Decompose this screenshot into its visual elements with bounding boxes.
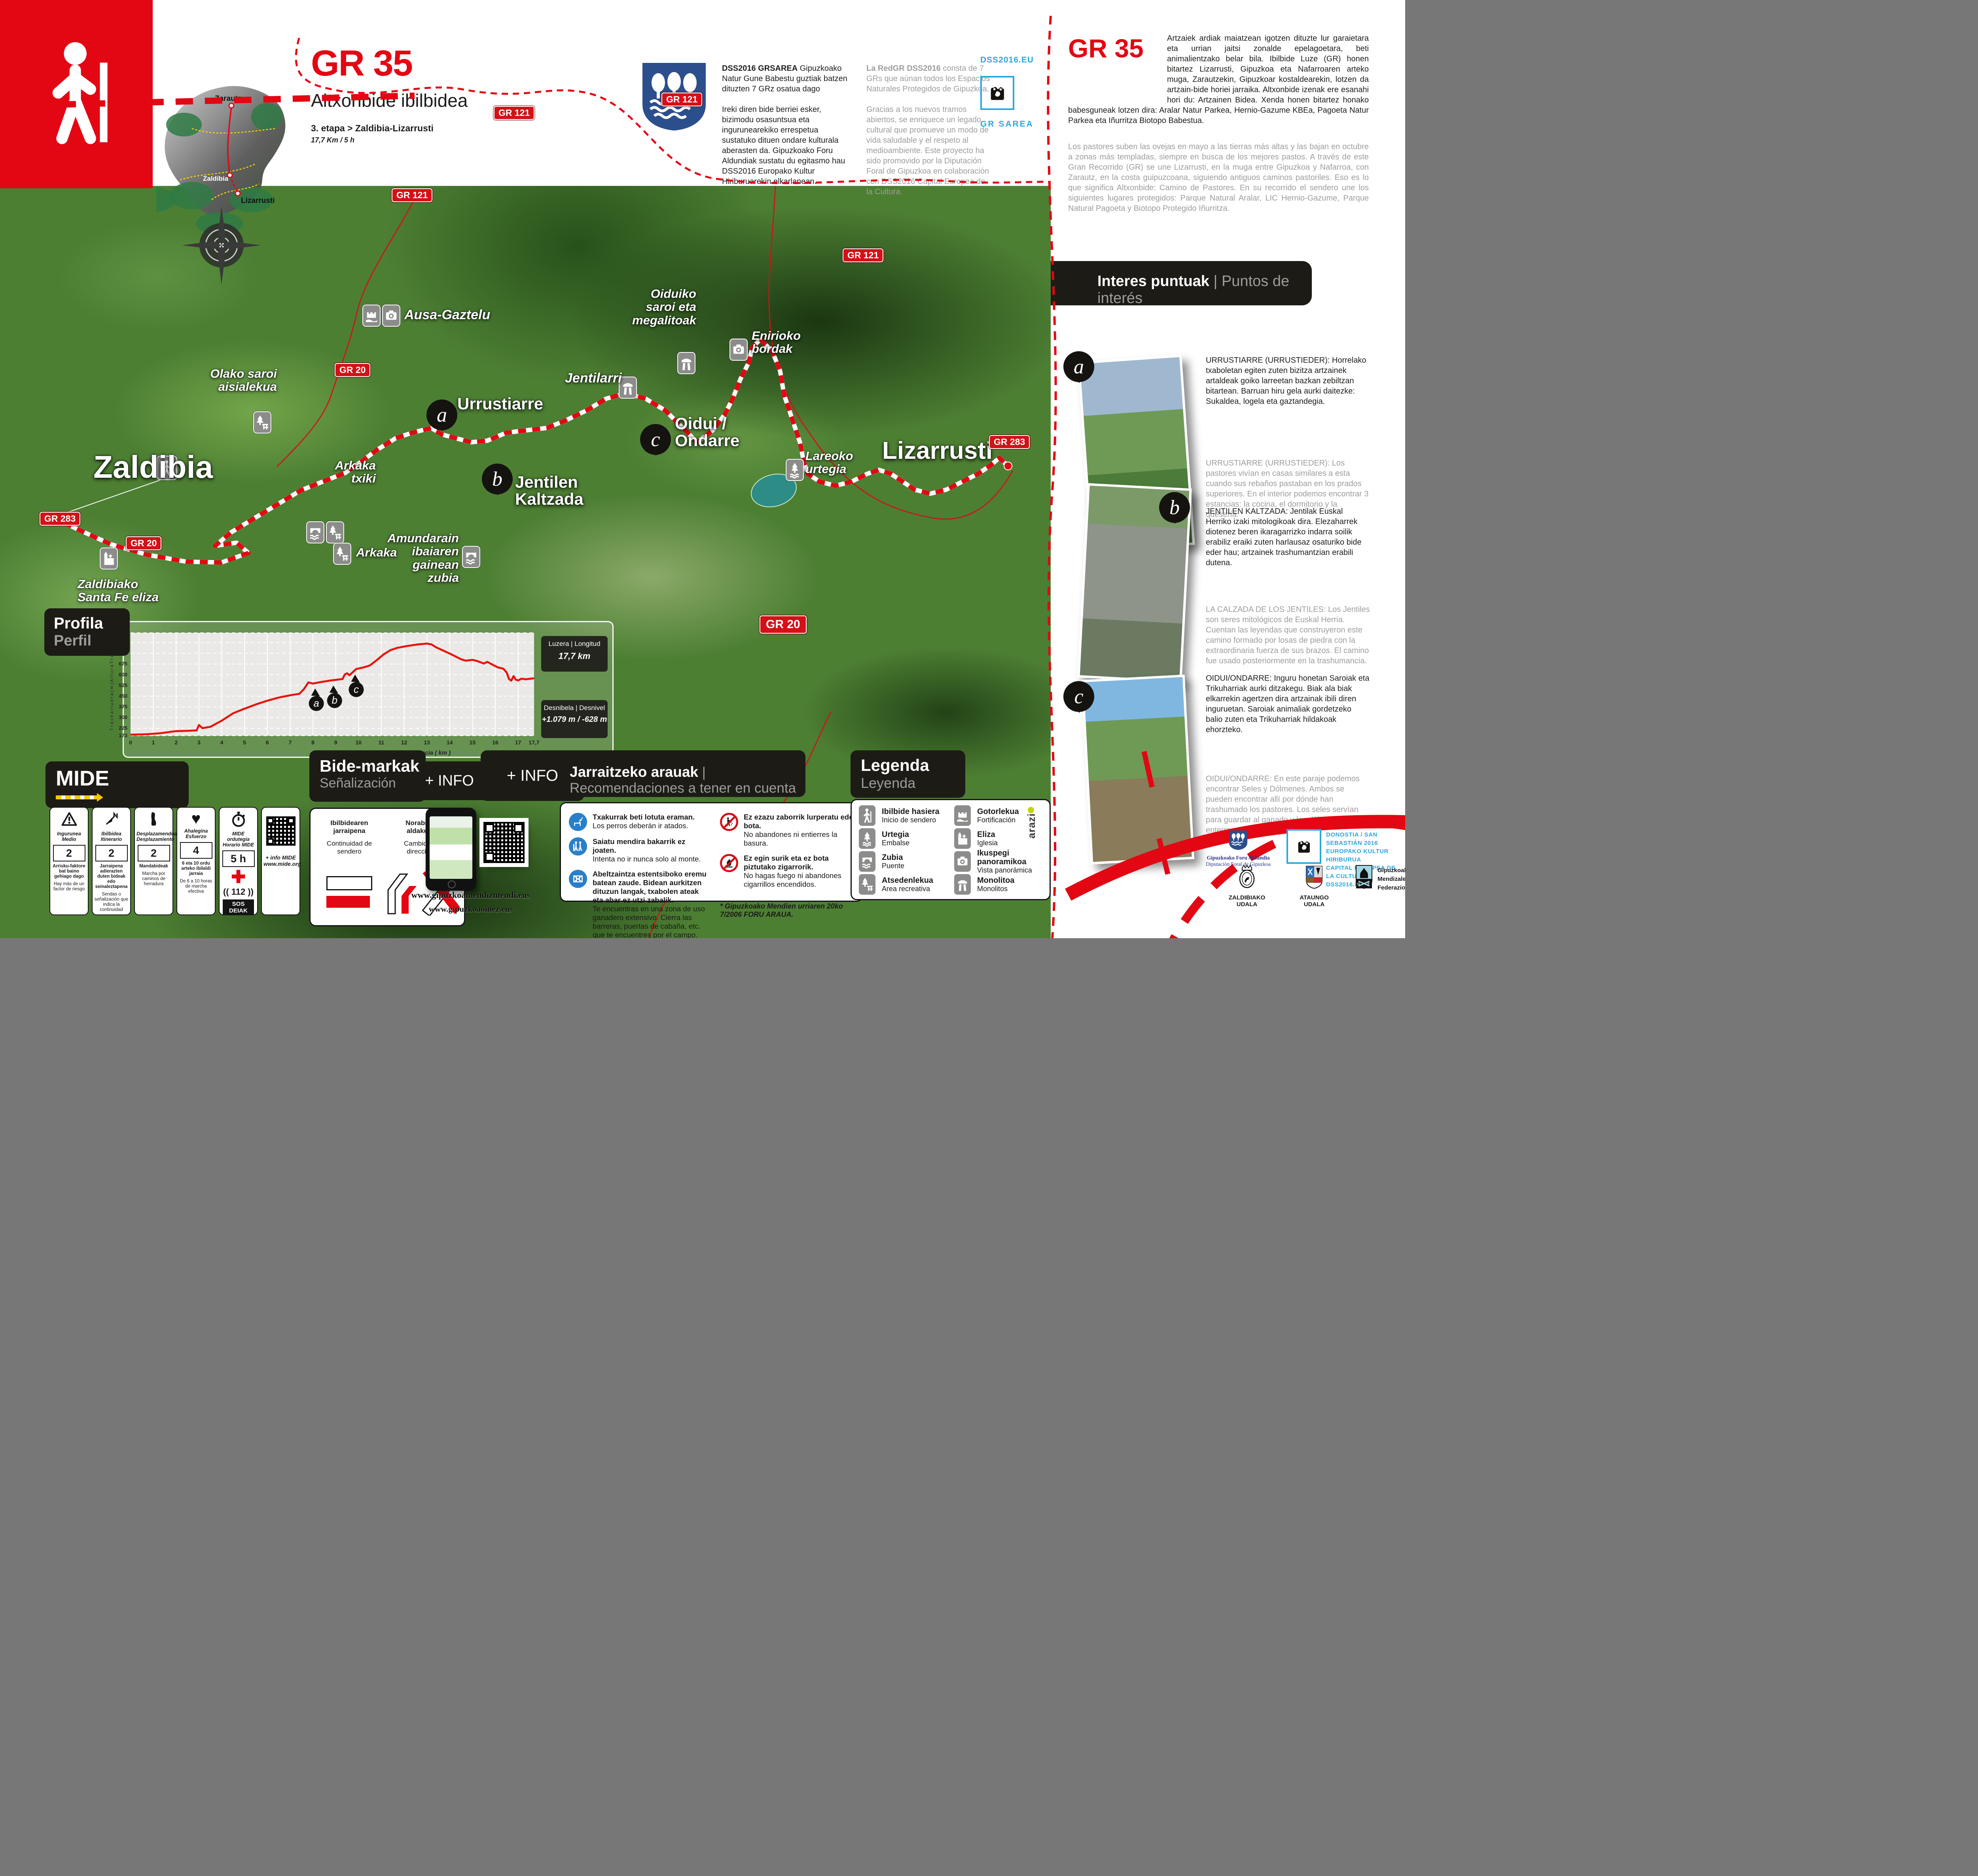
- hiker-pictogram-icon: [32, 28, 123, 158]
- legend-es: Monolitos: [977, 885, 1014, 893]
- dss-line1: DONOSTIA / SAN SEBASTIÁN 2016: [1326, 831, 1405, 847]
- inset-label-zaldibia: Zaldibia: [203, 175, 229, 182]
- route-name: Altxonbide ibilbidea: [311, 90, 468, 111]
- dolmen-icon: [954, 874, 971, 895]
- legend-eus: Monolitoa: [977, 876, 1014, 885]
- picnic-icon: [253, 411, 271, 434]
- profile-header: Profila Perfil: [44, 608, 130, 656]
- legend-eus: Atsedenlekua: [882, 876, 933, 885]
- mide-card-title-es: Medio: [52, 837, 86, 842]
- town-label-zaldibia: Zaldibia: [93, 451, 213, 483]
- poi-a-text-eus: URRUSTIARRE (URRUSTIEDER): Horrelako txa…: [1206, 355, 1370, 407]
- trail-poster: GR 121 GR 121 GR 121 GR 121 GR 20 GR 20 …: [0, 0, 1405, 938]
- intro-spanish: La RedGR DSS2016 consta de 7 GRs que aún…: [866, 63, 993, 197]
- gmf-line1: Gipuzkoako: [1377, 866, 1405, 875]
- url-mendizmendi: www.gipuzkoamendizmendi.eus: [380, 890, 562, 900]
- reservoir-icon: [786, 459, 804, 481]
- info-qr-code: [483, 822, 525, 863]
- dss2016-logo-block: DSS2016.EU GR SAREA: [980, 55, 1034, 129]
- rule-text-eus: Txakurrak beti lotuta eraman.: [593, 813, 695, 822]
- rules-title-sep: |: [698, 765, 706, 780]
- mide-qr-code: [266, 816, 296, 846]
- poi-marker-a: a: [426, 399, 457, 430]
- poi-marker-b: b: [482, 464, 513, 494]
- stopwatch-icon: [230, 811, 247, 827]
- legend-es: Iglesia: [977, 839, 998, 847]
- rule-text-eus: Ez ezazu zaborrik lurperatu edo bota.: [744, 813, 854, 830]
- hikers-icon: [569, 837, 587, 856]
- rule-text-es: No hagas fuego ni abandones cigarrillos …: [744, 871, 854, 889]
- rules-box: Txakurrak beti lotuta eraman.Los perros …: [560, 802, 863, 902]
- mide-card-title-es: Esfuerzo: [179, 834, 213, 839]
- rule-text-es: Intenta no ir nunca solo al monte.: [593, 855, 710, 863]
- gr-badge: GR 121: [843, 248, 883, 262]
- legend-es: Area recreativa: [882, 885, 933, 893]
- poi-marker-c: c: [640, 424, 671, 455]
- rule-fire: Ez egin surik eta ez bota piztutako ziga…: [720, 854, 854, 889]
- panel-intro: GR 35 Artzaiek ardiak maiatzean igotzen …: [1068, 33, 1369, 214]
- elevation-label: Desnibela | Desnivel: [541, 704, 608, 712]
- dog-leash-icon: [569, 813, 587, 831]
- mide-title: MIDE: [56, 766, 189, 791]
- profile-title-eus: Profila: [54, 615, 130, 632]
- mide-card-title-eus: Desplazamendua: [136, 831, 171, 837]
- place-label-oidui-ondarre: Oidui / Ondarre: [675, 415, 739, 449]
- rule-text-eus: Saiatu mendira bakarrik ez joaten.: [593, 837, 710, 855]
- mide-card-title-es: Horario MIDE: [221, 842, 256, 848]
- poi-b-text-es: LA CALZADA DE LOS JENTILES: Los Jentiles…: [1206, 604, 1370, 666]
- intro-basque: DSS2016 GRSAREA Gipuzkoako Natur Gune Ba…: [722, 63, 849, 187]
- rule-text-eus: Abeltzaintza estentsiboko eremu batean z…: [593, 870, 710, 905]
- poi-b-letter: b: [1159, 492, 1190, 523]
- inset-label-zarautz: Zarautz: [215, 95, 242, 103]
- camera-icon: [382, 305, 400, 327]
- length-value: 17,7 km: [541, 651, 608, 661]
- smartphone: [426, 808, 476, 891]
- mide-url: www.mide.org: [263, 861, 298, 867]
- rules-footnote: * Gipuzkoako Mendien urriaren 20ko 7/200…: [720, 902, 854, 919]
- footprint-icon: [146, 811, 162, 827]
- legend-es: Fortificación: [977, 816, 1019, 824]
- mide-card-desplazamiento: Desplazamendua Desplazamiento 2 Mandabid…: [134, 807, 173, 915]
- poi-header-eus: Interes puntuak: [1097, 273, 1209, 290]
- panel-intro-spanish: Los pastores suben las ovejas en mayo a …: [1068, 142, 1369, 214]
- rules-col-right: Ez ezazu zaborrik lurperatu edo bota.No …: [720, 813, 854, 891]
- arazi-dot: [1028, 807, 1034, 813]
- gr-badge: GR 283: [989, 435, 1030, 449]
- stage-label: 3. etapa > Zaldibia-Lizarrusti: [311, 123, 468, 134]
- mide-card-desc-es: De 6 a 10 horas de marcha efectiva: [179, 879, 213, 894]
- red-cross-icon: ✚: [221, 869, 256, 885]
- rule-solo: Saiatu mendira bakarrik ez joaten.Intent…: [569, 837, 710, 863]
- place-label-arkaka: Arkaka: [356, 546, 397, 559]
- dss2016-site-label: DSS2016.EU: [980, 55, 1034, 65]
- legend-es: Inicio de sendero: [882, 816, 940, 824]
- foru-aldundia-logo: Gipuzkoako Foru Aldundia Diputación Fora…: [1203, 830, 1274, 867]
- mide-card-desc-eus: Arrisku-faktore bat baino gehiago dago: [52, 864, 86, 879]
- mide-card-desc-eus: Jarraipena adierazten duten bideak edo s…: [94, 864, 129, 890]
- rules-title-es: Recomendaciones a tener en cuenta: [570, 780, 796, 796]
- gr-badge: GR 20: [760, 615, 807, 634]
- heart-icon: ♥: [179, 811, 213, 827]
- gr-badge: GR 20: [126, 536, 161, 550]
- gr-badge: GR 20: [335, 363, 370, 377]
- mide-info-text: + info MIDE: [263, 854, 298, 861]
- inset-label-lizarrusti: Lizarrusti: [241, 197, 275, 205]
- gmf-line2: Mendizale: [1377, 875, 1405, 884]
- mide-card-value: 2: [53, 845, 85, 861]
- rule-gates: Abeltzaintza estentsiboko eremu batean z…: [569, 870, 710, 938]
- zaldibia-udala-label: ZALDIBIAKO UDALA: [1223, 894, 1271, 908]
- length-info-box: Luzera | Longitud 17,7 km: [541, 636, 608, 672]
- legend-box: Ibilbide hasieraInicio de sendero Gotorl…: [851, 799, 1051, 900]
- signage-title-eus: Bide-markak: [320, 757, 426, 776]
- place-label-jentilen-kaltzada: Jentilen Kaltzada: [515, 474, 584, 508]
- mide-card-info: + info MIDE www.mide.org: [261, 807, 300, 915]
- intro-spanish-p2: Gracias a los nuevos tramos abiertos, se…: [866, 104, 993, 197]
- legend-es: Embalse: [882, 839, 909, 847]
- warning-icon: [61, 811, 78, 827]
- mide-card-desc-es: Sendas o señalización que indica la cont…: [94, 892, 129, 912]
- legend-es: Puente: [882, 862, 904, 870]
- ataun-udala-logo: ATAUNGO UDALA: [1290, 865, 1338, 908]
- mide-card-esfuerzo: ♥ Ahalegina Esfuerzo 4 6 eta 10 ordu art…: [176, 807, 216, 915]
- mide-card-itinerario: Ibilbidea Itinerario 2 Jarraipena adiera…: [92, 807, 131, 915]
- mide-card-desc-eus: 6 eta 10 ordu arteko ibilaldi jarraia: [179, 861, 213, 876]
- rules-header: Jarraitzeko arauak | Recomendaciones a t…: [558, 750, 805, 797]
- info-urls: www.gipuzkoamendizmendi.eus www.gipuzkoa…: [380, 890, 562, 914]
- place-label-lareoko: Lareoko urtegia: [805, 449, 853, 476]
- zaldibia-udala-logo: ZALDIBIAKO UDALA: [1223, 865, 1271, 908]
- svg-text:F: F: [1368, 882, 1370, 886]
- profile-title-es: Perfil: [54, 632, 130, 649]
- rules-col-left: Txakurrak beti lotuta eraman.Los perros …: [569, 813, 710, 891]
- distance-time-label: 17,7 Km / 5 h: [311, 136, 468, 144]
- arazi-logo: arazi: [1028, 807, 1053, 825]
- gmf-logo: GF: [1355, 865, 1374, 891]
- picnic-icon: [333, 543, 351, 565]
- legend-item-reservoir: UrtegiaEmbalse: [859, 827, 947, 850]
- place-label-santafe: Zaldibiako Santa Fe eliza: [78, 577, 159, 604]
- rule-litter: Ez ezazu zaborrik lurperatu edo bota.No …: [720, 813, 854, 848]
- url-oinez: www.gipuzkoaoinez.eus: [380, 904, 562, 914]
- compass-icon: [103, 811, 120, 827]
- gmf-label: Gipuzkoako Mendizale Federazioa: [1377, 866, 1405, 892]
- panel-route-code: GR 35: [1068, 34, 1144, 63]
- bridge-icon: [859, 851, 875, 872]
- svg-text:G: G: [1357, 882, 1360, 886]
- poi-header-sep: |: [1209, 273, 1222, 290]
- mide-header: MIDE: [45, 761, 189, 808]
- mide-card-title-eus: MIDE ordutegia: [221, 831, 256, 842]
- elevation-profile-panel: [123, 621, 614, 758]
- fort-icon: [954, 805, 971, 826]
- mide-card-desc-es: Hay más de un factor de riesgo: [52, 882, 86, 892]
- signage-header: Bide-markak Señalización: [309, 750, 426, 802]
- smartphone-home-button: [448, 880, 456, 888]
- poi-b-text-eus: JENTILEN KALTZADA: Jentilak Euskal Herri…: [1206, 506, 1370, 568]
- rule-text-es: Los perros deberán ir atados.: [593, 822, 695, 830]
- smartphone-screen: [430, 816, 472, 879]
- dss2016-footer-logo: [1286, 829, 1321, 864]
- rule-dogs: Txakurrak beti lotuta eraman.Los perros …: [569, 813, 710, 831]
- legend-item-bridge: ZubiaPuente: [859, 850, 947, 873]
- gmf-crest-icon: GF: [1355, 865, 1374, 889]
- legend-eus: Ikuspegi panoramikoa: [977, 849, 1042, 866]
- place-label-olako: Olako saroi aisialekua: [198, 367, 277, 394]
- poi-section-header: Interes puntuak | Puntos de interés: [1051, 261, 1312, 305]
- no-fire-icon: [720, 854, 738, 872]
- legend-item-trailhead: Ibilbide hasieraInicio de sendero: [859, 804, 947, 827]
- rules-title-eus: Jarraitzeko arauak: [570, 764, 698, 780]
- legend-item-monolith: MonolitoaMonolitos: [954, 873, 1042, 896]
- rule-text-eus: Ez egin surik eta ez bota piztutako ziga…: [744, 854, 854, 871]
- mide-card-title-eus: Ahalegina: [179, 828, 213, 834]
- length-label: Luzera | Longitud: [541, 640, 608, 648]
- intro-basque-p2: Ireki diren bide berriei esker, bizimodu…: [722, 104, 849, 187]
- gmf-line3: Federazioa: [1377, 884, 1405, 892]
- bridge-icon: [462, 546, 480, 568]
- panel-title-float: GR 35: [1068, 33, 1167, 100]
- camera-icon: [729, 339, 748, 361]
- legend-eus: Urtegia: [882, 830, 909, 839]
- intro-basque-lead: DSS2016 GRSAREA: [722, 64, 798, 73]
- gr-badge: GR 121: [392, 188, 432, 202]
- dolmen-icon: [677, 352, 695, 374]
- camera-icon: [954, 851, 971, 872]
- poi-c-letter: c: [1063, 681, 1094, 712]
- mide-card-value: 2: [138, 845, 170, 861]
- bridge-icon: [306, 521, 324, 543]
- poi-c-text-es: OIDUI/ONDARRE: En este paraje podemos en…: [1206, 774, 1370, 835]
- mide-card-horario: MIDE ordutegia Horario MIDE 5 h ✚ (( 112…: [219, 807, 258, 915]
- gr-sarea-logo: [980, 76, 1014, 110]
- place-label-ausa-gaztelu: Ausa-Gaztelu: [404, 308, 490, 322]
- legend-eus: Gotorlekua: [977, 807, 1019, 816]
- arazi-text: arazi: [1025, 813, 1038, 839]
- mide-card-value: 4: [180, 842, 212, 859]
- mide-card-value: 5 h: [222, 850, 255, 867]
- signage-label-continuity-eus: Ibilbidearen jarraipena: [318, 819, 381, 835]
- gate-icon: [569, 870, 587, 888]
- signage-title-es: Señalización: [320, 776, 426, 791]
- rule-text-es: No abandones ni entierres la basura.: [744, 830, 854, 848]
- picnic-icon: [859, 874, 875, 895]
- legend-item-view: Ikuspegi panoramikoaVista panorámica: [954, 850, 1042, 873]
- mide-card-title-eus: Ibilbidea: [94, 831, 129, 837]
- continuity-mark: [326, 876, 372, 908]
- gr-badge: GR 121: [494, 106, 534, 120]
- reservoir-icon: [859, 828, 875, 849]
- ataun-udala-label: ATAUNGO UDALA: [1290, 894, 1338, 908]
- route-code: GR 35: [311, 43, 468, 84]
- gr-badge: GR 121: [661, 93, 702, 106]
- intro-spanish-lead: La RedGR DSS2016: [866, 64, 941, 73]
- hiker-pictogram-block: [0, 0, 153, 188]
- legend-item-picnic: AtsedenlekuaArea recreativa: [859, 873, 947, 896]
- mide-card-desc-eus: Mandabideak: [136, 864, 171, 869]
- signage-label-continuity-es: Continuidad de sendero: [318, 840, 381, 856]
- sos-number: (( 112 )): [221, 887, 256, 897]
- rule-text-es: Te encuentras en una zona de uso ganader…: [593, 905, 710, 938]
- church-icon: [954, 828, 971, 849]
- mide-card-title-eus: Ingurunea: [52, 831, 86, 837]
- mide-card-desc-es: Marcha por caminos de herradura: [136, 871, 171, 887]
- poi-c-text-eus: OIDUI/ONDARRE: Inguru honetan Saroiak et…: [1206, 673, 1370, 735]
- place-label-oiduiko: Oiduiko saroi eta megalitoak: [617, 287, 696, 327]
- poi-photo-c: [1081, 674, 1194, 864]
- mide-arrow: [56, 793, 189, 802]
- poi-a-letter: a: [1063, 351, 1094, 382]
- hiker-icon: [859, 805, 875, 826]
- legend-eus: Zubia: [882, 853, 904, 862]
- fort-icon: [362, 305, 381, 327]
- gr-sarea-label: GR SAREA: [980, 119, 1034, 129]
- legend-title-es: Leyenda: [861, 775, 965, 791]
- foru-shield-icon: [1228, 830, 1249, 850]
- legend-eus: Ibilbide hasiera: [882, 807, 940, 816]
- dss-line2: EUROPAKO KULTUR HIRIBURUA: [1326, 847, 1405, 864]
- elevation-info-box: Desnibela | Desnivel +1.079 m / -628 m: [541, 700, 608, 738]
- legend-header: Legenda Leyenda: [851, 750, 965, 798]
- place-label-arkaka-txiki: Arkaka txiki: [297, 459, 376, 485]
- picnic-icon: [326, 521, 344, 543]
- no-litter-icon: [720, 813, 738, 831]
- elevation-value: +1.079 m / -628 m: [541, 715, 608, 724]
- mide-card-value: 2: [95, 845, 128, 861]
- zaldibia-crest-icon: [1236, 865, 1258, 889]
- church-icon: [100, 547, 118, 570]
- ataun-crest-icon: [1304, 865, 1324, 889]
- mide-card-title-es: Desplazamiento: [136, 837, 171, 842]
- foru-caption-eus: Gipuzkoako Foru Aldundia: [1203, 855, 1274, 861]
- place-label-enirioko: Enirioko bordak: [752, 329, 801, 356]
- legend-eus: Eliza: [977, 830, 998, 839]
- town-label-lizarrusti: Lizarrusti: [882, 438, 993, 463]
- legend-title-eus: Legenda: [861, 756, 965, 775]
- gipuzkoa-inset-map: Zarautz Zaldibia Lizarrusti: [156, 81, 293, 257]
- mide-card-title-es: Itinerario: [94, 837, 129, 842]
- place-label-urrustiarre: Urrustiarre: [457, 396, 543, 413]
- mide-card-medio: Ingurunea Medio 2 Arrisku-faktore bat ba…: [49, 807, 89, 915]
- place-label-jentilarri: Jentilarri: [565, 371, 622, 386]
- gr-badge: GR 283: [40, 512, 80, 526]
- sos-label: SOS DEIAK: [223, 899, 254, 915]
- title-block: GR 35 Altxonbide ibilbidea 3. etapa > Za…: [311, 43, 468, 144]
